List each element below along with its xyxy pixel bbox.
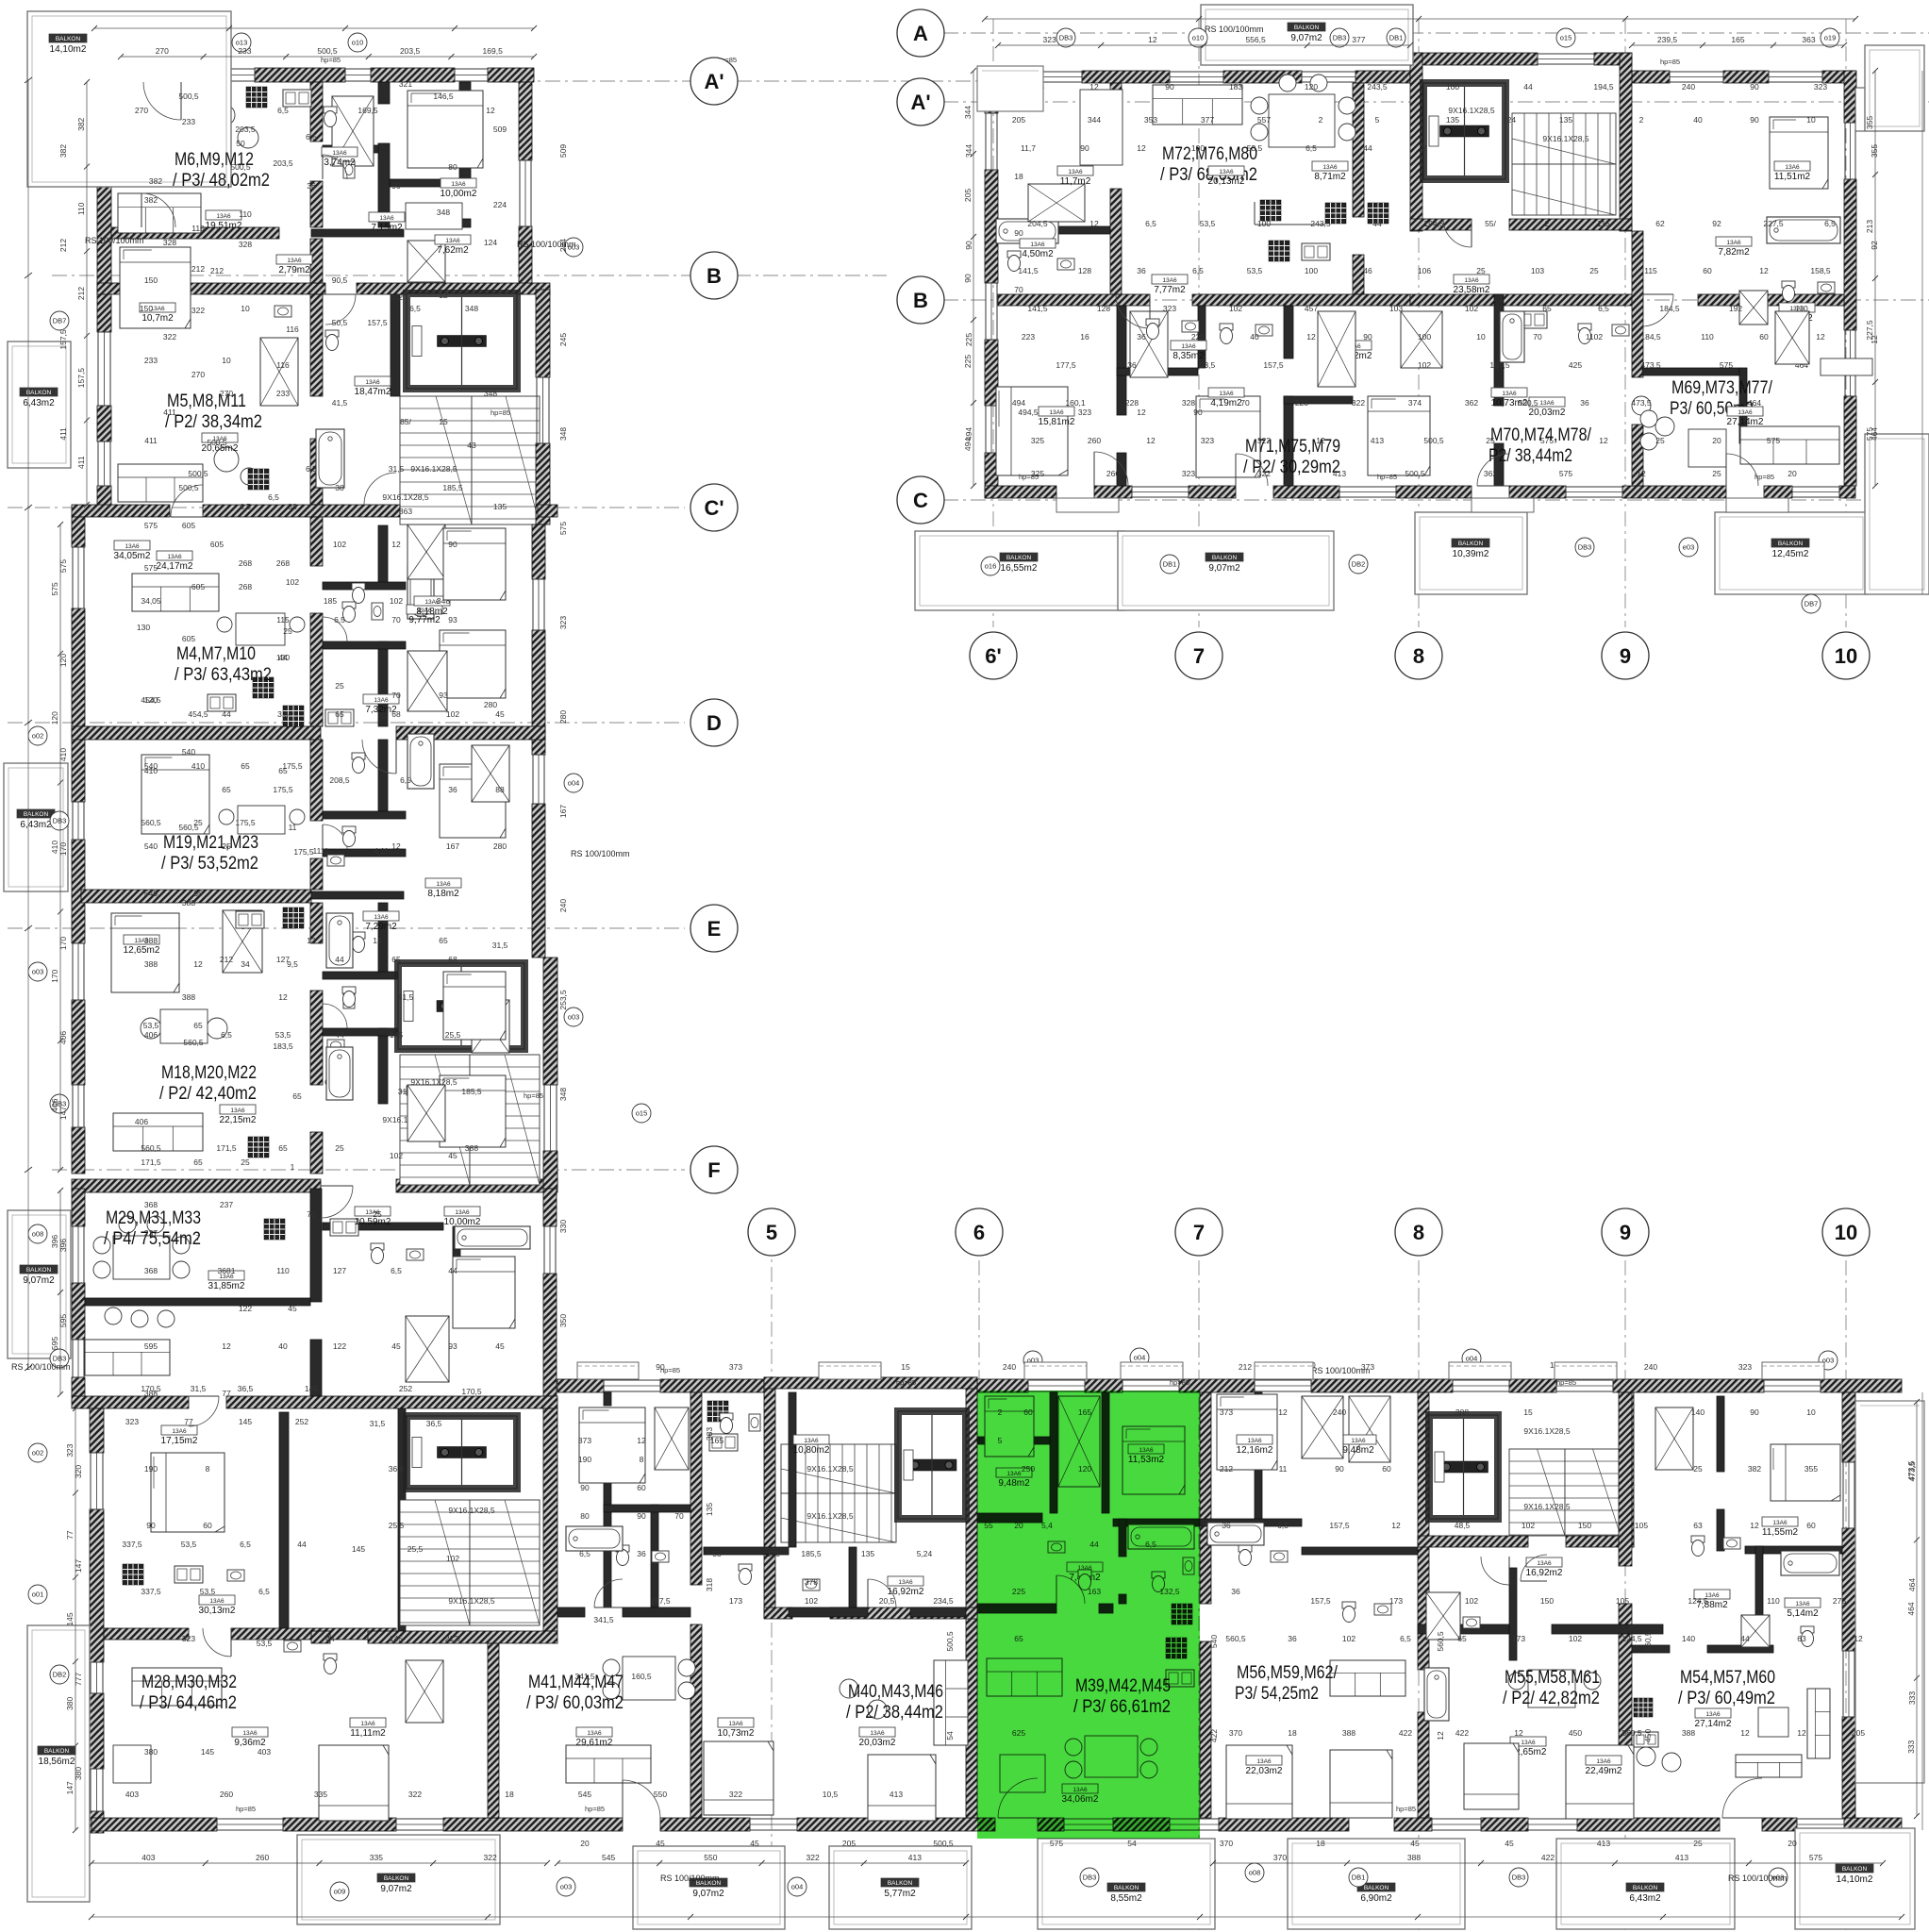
svg-text:500,5: 500,5: [178, 92, 199, 101]
svg-text:25: 25: [1693, 1464, 1703, 1474]
svg-text:13A6: 13A6: [1521, 1740, 1536, 1746]
svg-text:6,5: 6,5: [1192, 266, 1204, 275]
svg-text:90: 90: [448, 540, 457, 549]
svg-text:DB3: DB3: [1083, 1874, 1097, 1882]
svg-text:127: 127: [333, 1266, 346, 1275]
svg-text:o10: o10: [1192, 34, 1205, 42]
svg-text:322: 322: [729, 1790, 742, 1799]
svg-text:BALKON: BALKON: [44, 1748, 70, 1755]
svg-text:145: 145: [239, 1417, 252, 1426]
svg-text:90: 90: [1080, 143, 1089, 153]
svg-text:116: 116: [286, 325, 299, 334]
svg-text:7,29m2: 7,29m2: [365, 922, 397, 932]
svg-text:13A6: 13A6: [1322, 164, 1338, 171]
svg-text:322: 322: [807, 1853, 820, 1862]
svg-text:378: 378: [805, 1577, 818, 1587]
svg-text:413: 413: [1597, 1839, 1610, 1848]
svg-text:BALKON: BALKON: [1778, 541, 1804, 547]
svg-text:13A6: 13A6: [1030, 241, 1045, 248]
svg-text:8: 8: [640, 1455, 644, 1464]
svg-text:353: 353: [1144, 115, 1157, 125]
svg-text:145: 145: [390, 1634, 403, 1643]
svg-text:12: 12: [222, 1341, 231, 1351]
svg-text:150: 150: [140, 304, 153, 313]
svg-text:44: 44: [325, 1634, 335, 1643]
svg-text:o19: o19: [1824, 34, 1837, 42]
svg-text:54: 54: [945, 1731, 955, 1740]
svg-text:6,5: 6,5: [306, 464, 317, 474]
svg-text:124: 124: [484, 238, 497, 247]
svg-text:8,18m2: 8,18m2: [416, 607, 448, 617]
svg-text:65: 65: [193, 1158, 203, 1167]
svg-text:185,5: 185,5: [461, 1087, 482, 1096]
svg-text:13A6: 13A6: [1256, 1758, 1272, 1765]
svg-text:23,58m2: 23,58m2: [1454, 285, 1490, 295]
svg-text:M5,M8,M11: M5,M8,M11: [167, 391, 246, 411]
svg-text:185,5: 185,5: [442, 483, 463, 492]
svg-text:62: 62: [1655, 219, 1665, 228]
svg-text:388: 388: [1407, 1853, 1421, 1862]
svg-text:128: 128: [1097, 304, 1110, 313]
svg-text:194,5: 194,5: [1423, 219, 1444, 228]
svg-text:hp=85: hp=85: [236, 1805, 256, 1813]
svg-text:13A6: 13A6: [587, 1730, 602, 1737]
svg-text:102: 102: [1229, 304, 1242, 313]
svg-text:184,5: 184,5: [1640, 332, 1661, 341]
svg-text:80: 80: [448, 162, 457, 172]
svg-text:228: 228: [1125, 398, 1139, 408]
svg-text:50: 50: [236, 139, 245, 148]
svg-text:380: 380: [65, 1697, 75, 1710]
svg-text:146,5: 146,5: [433, 92, 454, 101]
svg-text:122: 122: [333, 1341, 346, 1351]
svg-text:12: 12: [1306, 332, 1316, 341]
svg-text:171,5: 171,5: [141, 1158, 161, 1167]
svg-text:20: 20: [1712, 436, 1721, 445]
svg-text:53,5: 53,5: [143, 1021, 159, 1030]
svg-text:380: 380: [144, 1747, 158, 1757]
svg-text:169,5: 169,5: [483, 46, 504, 56]
svg-text:o04: o04: [1134, 1354, 1146, 1362]
svg-text:102: 102: [390, 1151, 403, 1160]
svg-text:3,74m2: 3,74m2: [324, 158, 356, 168]
svg-text:323: 323: [182, 1634, 195, 1643]
svg-text:422: 422: [1541, 1853, 1555, 1862]
svg-text:110: 110: [239, 209, 252, 219]
svg-text:11,7: 11,7: [1021, 143, 1036, 153]
svg-text:102: 102: [446, 1554, 459, 1563]
svg-text:124,5: 124,5: [1688, 1596, 1708, 1606]
svg-text:212: 212: [1239, 1362, 1252, 1372]
svg-text:BALKON: BALKON: [56, 36, 81, 42]
svg-text:184,5: 184,5: [1659, 304, 1680, 313]
svg-text:o15: o15: [1560, 34, 1572, 42]
svg-text:12: 12: [1137, 143, 1146, 153]
svg-text:368: 368: [144, 1200, 158, 1209]
svg-text:13A6: 13A6: [374, 914, 389, 921]
svg-text:14,10m2: 14,10m2: [1837, 1874, 1873, 1885]
svg-text:1102: 1102: [1586, 332, 1604, 341]
svg-text:422: 422: [1455, 1728, 1469, 1738]
svg-text:422: 422: [1209, 1729, 1219, 1742]
svg-text:13A6: 13A6: [374, 697, 389, 704]
svg-text:9: 9: [1620, 1221, 1631, 1244]
svg-text:130: 130: [137, 623, 150, 632]
svg-text:5,14m2: 5,14m2: [1787, 1608, 1819, 1619]
svg-text:60: 60: [1382, 1464, 1391, 1474]
svg-text:556,5: 556,5: [1245, 35, 1266, 44]
svg-text:102: 102: [1465, 304, 1478, 313]
svg-text:C': C': [704, 496, 723, 520]
svg-text:A': A': [704, 70, 723, 93]
svg-text:363: 363: [399, 507, 412, 516]
svg-text:777: 777: [74, 1673, 83, 1686]
svg-text:500,5: 500,5: [1405, 469, 1425, 478]
svg-text:C: C: [913, 489, 928, 512]
svg-text:323: 323: [1814, 82, 1827, 92]
svg-text:12: 12: [1514, 1728, 1523, 1738]
svg-text:13A6: 13A6: [1738, 409, 1753, 416]
svg-text:13A6: 13A6: [804, 1438, 819, 1444]
svg-text:165: 165: [1731, 35, 1744, 44]
svg-text:411: 411: [76, 456, 86, 469]
svg-text:44: 44: [335, 955, 344, 964]
svg-text:36: 36: [1137, 266, 1146, 275]
svg-text:10: 10: [241, 304, 250, 313]
svg-text:10,00m2: 10,00m2: [441, 189, 477, 199]
svg-text:102: 102: [286, 577, 299, 587]
svg-text:13A6: 13A6: [870, 1730, 885, 1737]
svg-text:450: 450: [1569, 1728, 1582, 1738]
svg-text:F: F: [707, 1158, 720, 1182]
svg-text:70: 70: [1014, 285, 1023, 294]
svg-text:15: 15: [439, 417, 448, 426]
svg-text:102: 102: [390, 292, 403, 302]
svg-text:88: 88: [495, 785, 505, 794]
svg-text:382: 382: [144, 195, 158, 205]
svg-text:308: 308: [1455, 1407, 1469, 1417]
svg-text:hp=85: hp=85: [1019, 473, 1039, 481]
svg-text:403: 403: [258, 1747, 271, 1757]
svg-text:60: 60: [637, 1483, 646, 1492]
svg-text:16: 16: [373, 936, 382, 945]
svg-text:406: 406: [144, 1030, 158, 1040]
svg-text:44: 44: [1372, 219, 1382, 228]
svg-text:o04: o04: [568, 779, 580, 788]
svg-text:150: 150: [144, 275, 158, 285]
svg-text:9,07m2: 9,07m2: [1208, 563, 1240, 574]
svg-text:13A6: 13A6: [1162, 277, 1177, 284]
svg-text:212: 212: [191, 264, 205, 274]
svg-text:10,80m2: 10,80m2: [793, 1445, 830, 1456]
svg-text:595: 595: [58, 1314, 68, 1327]
svg-text:150: 150: [1540, 1596, 1554, 1606]
svg-text:22,03m2: 22,03m2: [1246, 1766, 1283, 1776]
svg-text:102: 102: [805, 1596, 818, 1606]
svg-text:234,5: 234,5: [933, 1596, 954, 1606]
svg-text:60: 60: [1759, 332, 1769, 341]
svg-text:500,5: 500,5: [1423, 436, 1444, 445]
svg-text:605: 605: [191, 582, 205, 591]
svg-text:6: 6: [973, 1221, 985, 1244]
svg-text:65: 65: [222, 785, 231, 794]
svg-text:355: 355: [1865, 116, 1874, 129]
svg-text:322: 322: [191, 306, 205, 315]
svg-text:464: 464: [1748, 398, 1761, 408]
svg-text:240: 240: [1644, 1362, 1657, 1372]
svg-text:175,5: 175,5: [293, 847, 314, 857]
svg-text:7: 7: [196, 1233, 201, 1242]
svg-text:11,55m2: 11,55m2: [1762, 1527, 1799, 1538]
svg-text:500,5: 500,5: [1518, 398, 1538, 408]
svg-text:115: 115: [276, 615, 290, 625]
svg-text:106: 106: [1418, 266, 1431, 275]
svg-text:44: 44: [1523, 82, 1533, 92]
svg-text:45: 45: [495, 1341, 505, 1351]
svg-text:45: 45: [1505, 1839, 1514, 1848]
svg-text:575: 575: [558, 522, 568, 535]
svg-text:44: 44: [222, 709, 231, 719]
svg-text:348: 348: [558, 427, 568, 441]
svg-text:160,1: 160,1: [1065, 398, 1086, 408]
svg-text:63: 63: [1693, 1521, 1703, 1530]
svg-text:/ P3/ 60,49m2: / P3/ 60,49m2: [1678, 1689, 1775, 1708]
svg-text:77: 77: [222, 1389, 231, 1398]
svg-text:388: 388: [182, 898, 195, 908]
svg-text:545: 545: [578, 1790, 591, 1799]
svg-text:328: 328: [163, 238, 176, 247]
svg-text:373: 373: [578, 1436, 591, 1445]
svg-text:500,5: 500,5: [945, 1631, 955, 1652]
svg-text:170,5: 170,5: [141, 1384, 161, 1393]
svg-text:RS 100/100mm: RS 100/100mm: [1205, 25, 1264, 34]
svg-text:268: 268: [239, 582, 252, 591]
svg-text:M55,M58,M61: M55,M58,M61: [1505, 1668, 1600, 1688]
svg-text:DB2: DB2: [1352, 560, 1366, 569]
svg-text:6,5: 6,5: [391, 1266, 402, 1275]
svg-text:44: 44: [335, 1030, 344, 1040]
svg-text:323: 323: [1043, 35, 1056, 44]
svg-text:85/: 85/: [400, 417, 411, 426]
svg-text:223: 223: [1022, 332, 1035, 341]
svg-text:15: 15: [901, 1362, 910, 1372]
svg-text:31,5: 31,5: [389, 464, 405, 474]
svg-text:hp=85: hp=85: [1396, 1805, 1416, 1813]
svg-text:237: 237: [144, 1228, 158, 1238]
svg-text:13A6: 13A6: [436, 881, 451, 888]
svg-text:158,5: 158,5: [1810, 266, 1831, 275]
svg-text:140: 140: [1691, 1407, 1705, 1417]
svg-text:8: 8: [1413, 1221, 1424, 1244]
svg-text:77: 77: [184, 1417, 193, 1426]
svg-text:167: 167: [558, 805, 568, 818]
svg-text:M72,M76,M80: M72,M76,M80: [1162, 144, 1257, 164]
svg-text:BALKON: BALKON: [1006, 555, 1032, 561]
svg-text:25: 25: [335, 1143, 344, 1153]
svg-text:102: 102: [390, 596, 403, 606]
svg-text:12: 12: [1436, 1731, 1445, 1740]
svg-text:205: 205: [1852, 1728, 1865, 1738]
svg-text:233: 233: [182, 117, 195, 126]
svg-text:2,79m2: 2,79m2: [278, 265, 310, 275]
svg-text:36: 36: [637, 1549, 646, 1558]
svg-text:12: 12: [193, 959, 203, 969]
svg-text:500,5: 500,5: [317, 46, 338, 56]
svg-text:243,5: 243,5: [1310, 219, 1331, 228]
svg-text:560,5: 560,5: [141, 1143, 161, 1153]
svg-text:225: 225: [963, 355, 973, 368]
svg-text:145: 145: [201, 1747, 214, 1757]
svg-text:406: 406: [58, 1031, 68, 1044]
svg-text:145: 145: [390, 1030, 403, 1040]
svg-text:DB1: DB1: [1352, 1874, 1366, 1882]
svg-text:135: 135: [861, 1549, 874, 1558]
svg-text:77: 77: [65, 1530, 75, 1540]
svg-text:90: 90: [637, 1511, 646, 1521]
svg-text:167: 167: [446, 841, 459, 851]
svg-text:o03: o03: [568, 1013, 580, 1022]
svg-text:411: 411: [163, 408, 176, 417]
svg-text:45: 45: [288, 1304, 297, 1313]
svg-text:25: 25: [1589, 266, 1599, 275]
svg-text:12,65m2: 12,65m2: [124, 945, 160, 956]
svg-text:13A6: 13A6: [898, 1579, 913, 1586]
svg-text:135: 135: [1446, 115, 1459, 125]
svg-text:557: 557: [1257, 115, 1271, 125]
svg-text:13A6: 13A6: [1785, 164, 1800, 171]
svg-text:157,5: 157,5: [1329, 1521, 1350, 1530]
svg-text:333: 333: [1907, 1691, 1917, 1705]
svg-text:92: 92: [1870, 241, 1879, 250]
svg-text:6,43m2: 6,43m2: [1629, 1893, 1661, 1904]
svg-text:410: 410: [191, 761, 205, 771]
svg-text:450: 450: [1643, 1729, 1653, 1742]
svg-text:9X16.1X28,5: 9X16.1X28,5: [382, 492, 428, 502]
svg-text:12: 12: [1089, 219, 1099, 228]
svg-text:185: 185: [324, 596, 337, 606]
svg-text:280: 280: [484, 700, 497, 709]
svg-text:373: 373: [1361, 1362, 1374, 1372]
svg-text:25: 25: [373, 1209, 382, 1219]
svg-text:BALKON: BALKON: [26, 1267, 52, 1274]
svg-text:212: 212: [58, 239, 68, 252]
svg-text:e03: e03: [1683, 543, 1695, 552]
svg-text:382: 382: [76, 117, 86, 130]
svg-text:16: 16: [1080, 332, 1089, 341]
svg-text:13A6: 13A6: [1068, 169, 1083, 175]
svg-text:13A6: 13A6: [125, 543, 140, 550]
svg-text:25: 25: [283, 626, 292, 636]
svg-text:9X16.1X28,5: 9X16.1X28,5: [448, 1596, 494, 1606]
svg-text:363: 363: [1802, 35, 1815, 44]
svg-text:575: 575: [50, 582, 59, 595]
svg-text:o02: o02: [32, 732, 44, 741]
svg-text:183: 183: [1229, 82, 1242, 92]
svg-text:41,5: 41,5: [398, 992, 414, 1002]
svg-text:DB1: DB1: [1389, 34, 1404, 42]
svg-text:273: 273: [1833, 1596, 1846, 1606]
svg-text:323: 323: [1078, 408, 1091, 417]
svg-text:36: 36: [1222, 1521, 1231, 1530]
svg-text:116: 116: [276, 360, 290, 370]
svg-text:RS 100/100mm: RS 100/100mm: [11, 1362, 71, 1372]
svg-text:90: 90: [1750, 1407, 1759, 1417]
svg-text:80: 80: [580, 1511, 590, 1521]
svg-text:40: 40: [278, 1341, 288, 1351]
svg-text:173: 173: [729, 1596, 742, 1606]
svg-text:344: 344: [963, 106, 973, 119]
svg-text:53,5: 53,5: [1200, 360, 1216, 370]
svg-text:hp=85: hp=85: [491, 408, 510, 417]
svg-text:DB7: DB7: [1804, 600, 1819, 608]
svg-text:o16: o16: [985, 562, 997, 571]
svg-text:237: 237: [220, 1200, 233, 1209]
svg-text:65: 65: [193, 1021, 203, 1030]
svg-text:170: 170: [58, 937, 68, 950]
svg-text:A': A': [910, 91, 930, 114]
svg-text:18: 18: [1316, 1839, 1325, 1848]
svg-text:240: 240: [1682, 82, 1695, 92]
svg-text:hp=85: hp=85: [585, 1805, 605, 1813]
svg-text:13A6: 13A6: [1219, 169, 1234, 175]
svg-text:157,5: 157,5: [367, 318, 388, 327]
svg-text:388: 388: [144, 936, 158, 945]
svg-text:464: 464: [1906, 1602, 1916, 1615]
svg-text:335: 335: [370, 1853, 383, 1862]
svg-text:318: 318: [705, 1578, 714, 1591]
svg-text:B: B: [707, 264, 722, 288]
svg-text:6,5: 6,5: [1824, 219, 1836, 228]
svg-text:8,18m2: 8,18m2: [427, 889, 459, 899]
svg-text:M19,M21,M23: M19,M21,M23: [163, 833, 258, 853]
svg-text:413: 413: [908, 1853, 922, 1862]
svg-text:BALKON: BALKON: [384, 1875, 409, 1882]
svg-text:10: 10: [1835, 644, 1857, 668]
svg-text:25: 25: [222, 841, 231, 851]
svg-text:550: 550: [654, 1790, 667, 1799]
svg-text:509: 509: [558, 144, 568, 158]
svg-text:323: 323: [65, 1443, 75, 1457]
svg-text:245: 245: [558, 333, 568, 346]
svg-text:135: 135: [705, 1503, 714, 1516]
svg-text:53,5: 53,5: [181, 1540, 197, 1549]
svg-text:45: 45: [750, 1839, 759, 1848]
svg-text:560,5: 560,5: [141, 818, 161, 827]
svg-text:18: 18: [505, 1790, 514, 1799]
svg-text:15,81m2: 15,81m2: [1039, 417, 1075, 427]
svg-text:6,5: 6,5: [240, 1540, 251, 1549]
svg-text:344: 344: [964, 144, 973, 158]
svg-text:323: 323: [125, 1417, 139, 1426]
svg-text:5: 5: [1375, 115, 1380, 125]
svg-text:605: 605: [182, 634, 195, 643]
svg-text:5,24: 5,24: [917, 1549, 933, 1558]
svg-text:65: 65: [241, 761, 250, 771]
svg-text:6,43m2: 6,43m2: [20, 820, 52, 830]
svg-text:65: 65: [292, 1091, 302, 1101]
svg-text:2: 2: [1639, 115, 1644, 125]
svg-text:344: 344: [1088, 115, 1101, 125]
svg-text:192: 192: [1729, 304, 1742, 313]
svg-text:145: 145: [65, 1612, 75, 1625]
svg-text:13A6: 13A6: [1247, 1438, 1262, 1444]
svg-text:110: 110: [191, 224, 205, 233]
svg-text:6,5: 6,5: [334, 615, 345, 625]
svg-text:20,5: 20,5: [879, 1596, 895, 1606]
svg-text:M29,M31,M33: M29,M31,M33: [106, 1208, 201, 1228]
svg-text:65: 65: [391, 955, 401, 964]
svg-text:/ P2/ 38,34m2: / P2/ 38,34m2: [165, 412, 262, 432]
